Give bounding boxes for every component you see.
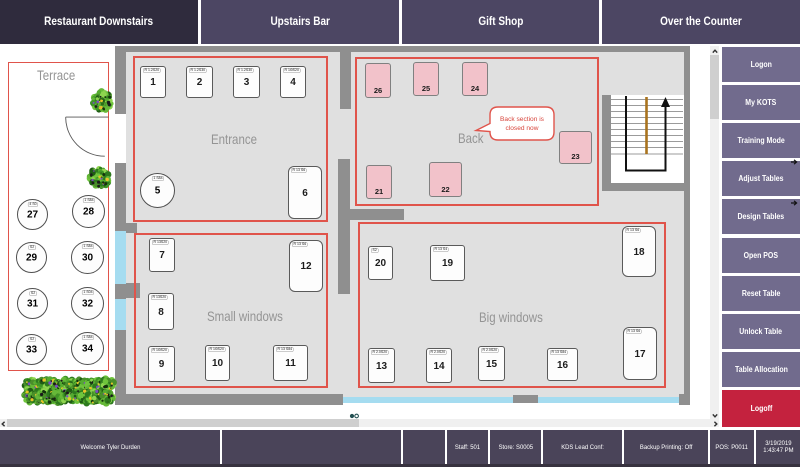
svg-text:closed now: closed now [506, 125, 539, 132]
svg-text:Back section is: Back section is [500, 116, 545, 123]
